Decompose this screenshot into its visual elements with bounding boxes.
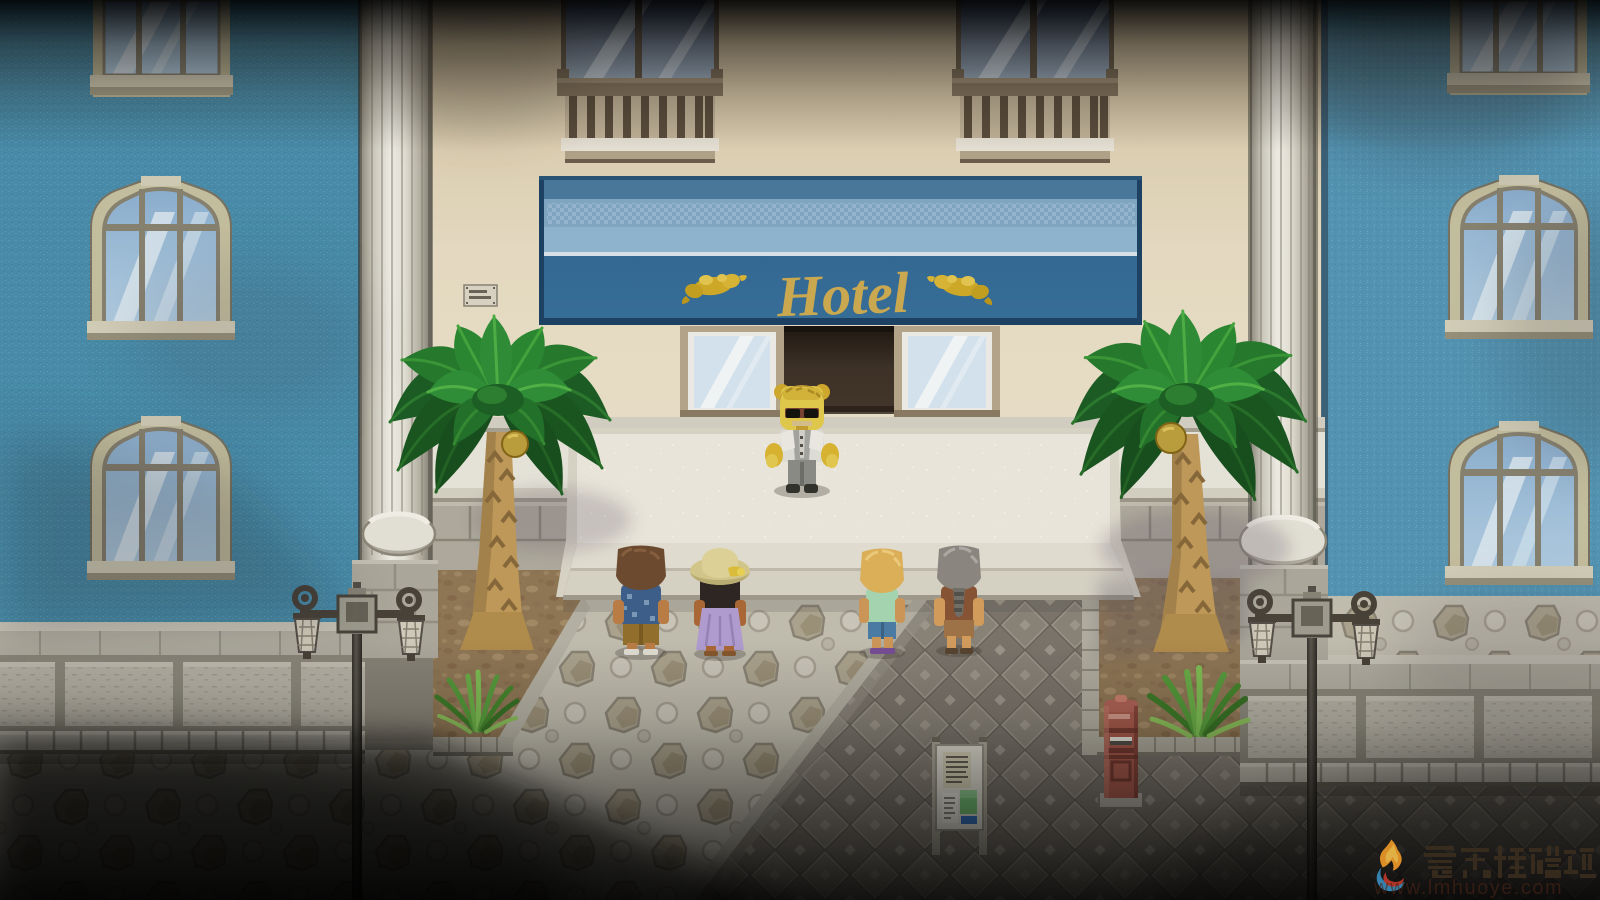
svg-text:www.lmhuoye.com: www.lmhuoye.com [1373,877,1563,899]
